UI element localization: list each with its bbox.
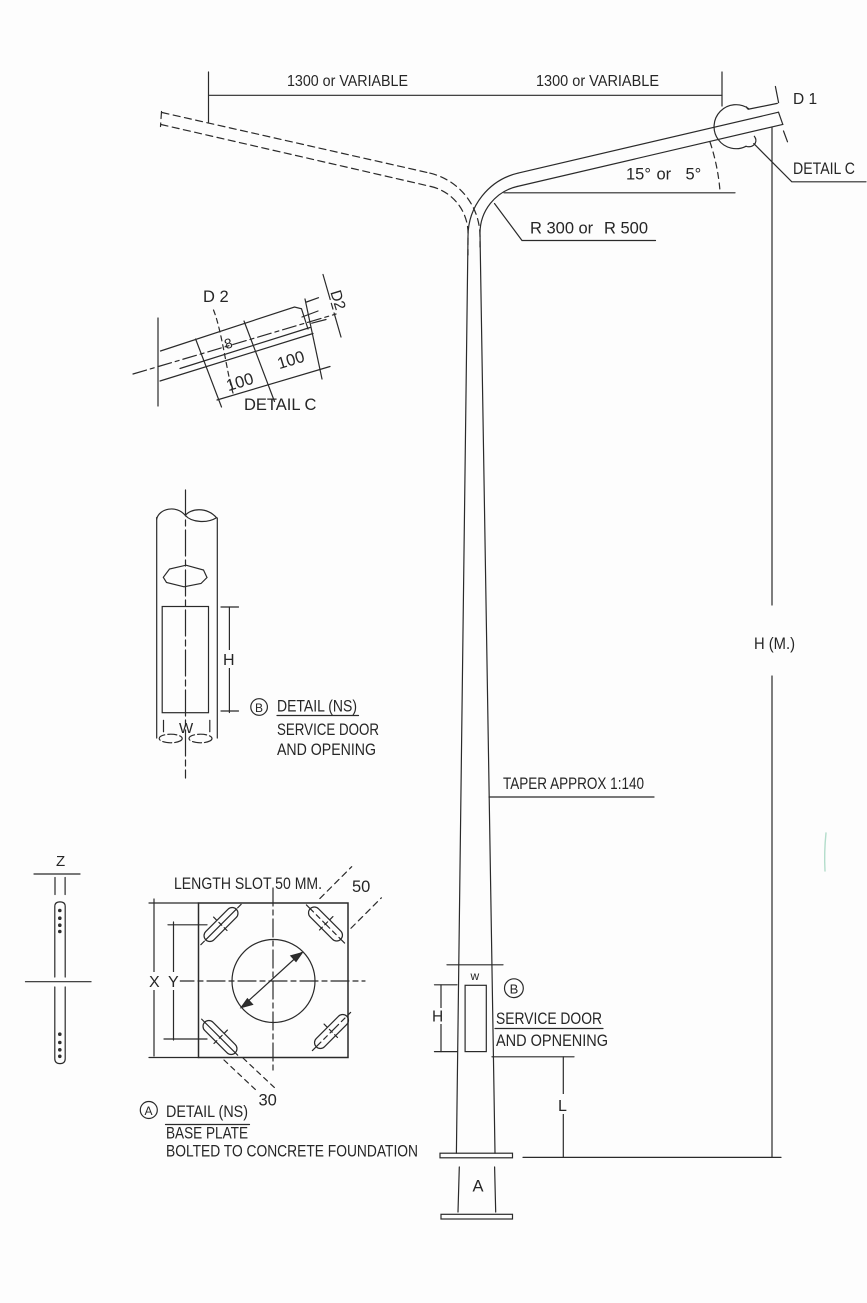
svg-text:B: B	[255, 701, 263, 715]
svg-text:A: A	[473, 1178, 484, 1196]
svg-text:DETAIL (NS): DETAIL (NS)	[166, 1102, 248, 1121]
svg-text:LENGTH SLOT 50 MM.: LENGTH SLOT 50 MM.	[174, 875, 322, 893]
svg-text:SERVICE DOOR: SERVICE DOOR	[496, 1010, 602, 1028]
svg-text:X: X	[149, 974, 160, 991]
svg-text:R 300: R 300	[530, 220, 574, 238]
svg-text:TAPER APPROX 1:140: TAPER APPROX 1:140	[503, 775, 644, 793]
svg-text:50: 50	[352, 878, 370, 896]
svg-text:H: H	[223, 652, 235, 669]
svg-text:DETAIL C: DETAIL C	[793, 160, 855, 178]
svg-text:DETAIL (NS): DETAIL (NS)	[277, 698, 357, 716]
svg-text:B: B	[510, 982, 519, 997]
svg-text:1300 or VARIABLE: 1300 or VARIABLE	[287, 73, 408, 90]
svg-text:or: or	[579, 220, 594, 238]
svg-text:30: 30	[259, 1092, 277, 1110]
svg-text:BOLTED TO CONCRETE FOUNDATION: BOLTED TO CONCRETE FOUNDATION	[166, 1143, 418, 1161]
svg-text:AND OPENING: AND OPENING	[277, 741, 376, 759]
svg-text:A: A	[145, 1104, 153, 1118]
svg-text:5°: 5°	[686, 166, 702, 184]
svg-text:H: H	[432, 1009, 443, 1026]
svg-text:15°: 15°	[626, 166, 651, 184]
svg-text:Z: Z	[56, 853, 65, 870]
svg-text:Y: Y	[168, 974, 179, 991]
svg-text:DETAIL C: DETAIL C	[244, 396, 317, 414]
svg-text:AND OPNENING: AND OPNENING	[496, 1032, 608, 1050]
svg-text:W: W	[179, 720, 194, 737]
svg-text:SERVICE DOOR: SERVICE DOOR	[277, 721, 379, 739]
svg-text:D 1: D 1	[793, 91, 817, 108]
svg-text:1300 or VARIABLE: 1300 or VARIABLE	[536, 73, 659, 90]
svg-text:or: or	[657, 166, 672, 184]
svg-text:w: w	[470, 969, 480, 983]
svg-text:BASE PLATE: BASE PLATE	[166, 1125, 248, 1143]
svg-text:D 2: D 2	[203, 288, 229, 306]
svg-text:R 500: R 500	[604, 220, 648, 238]
svg-text:H (M.): H (M.)	[754, 635, 795, 653]
svg-text:L: L	[558, 1098, 567, 1115]
